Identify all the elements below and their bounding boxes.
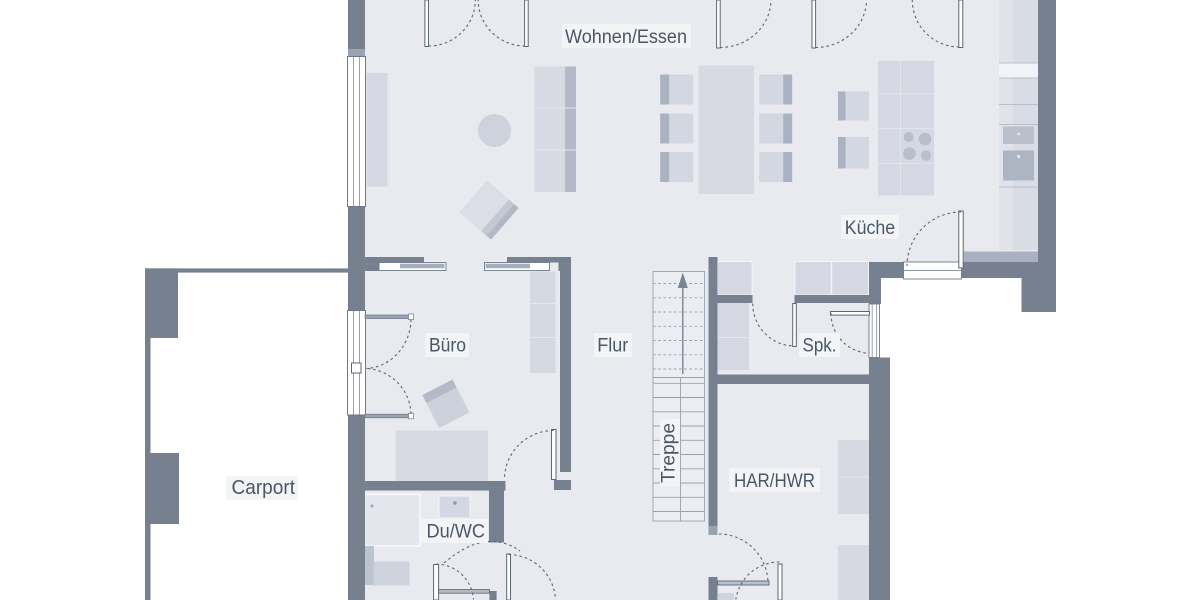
svg-text:Büro: Büro bbox=[429, 335, 466, 357]
svg-text:Wohnen/Essen: Wohnen/Essen bbox=[565, 26, 687, 48]
svg-text:Flur: Flur bbox=[597, 335, 628, 357]
svg-text:HAR/HWR: HAR/HWR bbox=[734, 470, 815, 492]
svg-text:Küche: Küche bbox=[845, 217, 896, 239]
svg-text:Du/WC: Du/WC bbox=[427, 521, 486, 543]
svg-text:Spk.: Spk. bbox=[803, 335, 837, 357]
svg-text:Treppe: Treppe bbox=[659, 423, 680, 483]
svg-text:Carport: Carport bbox=[232, 476, 296, 499]
